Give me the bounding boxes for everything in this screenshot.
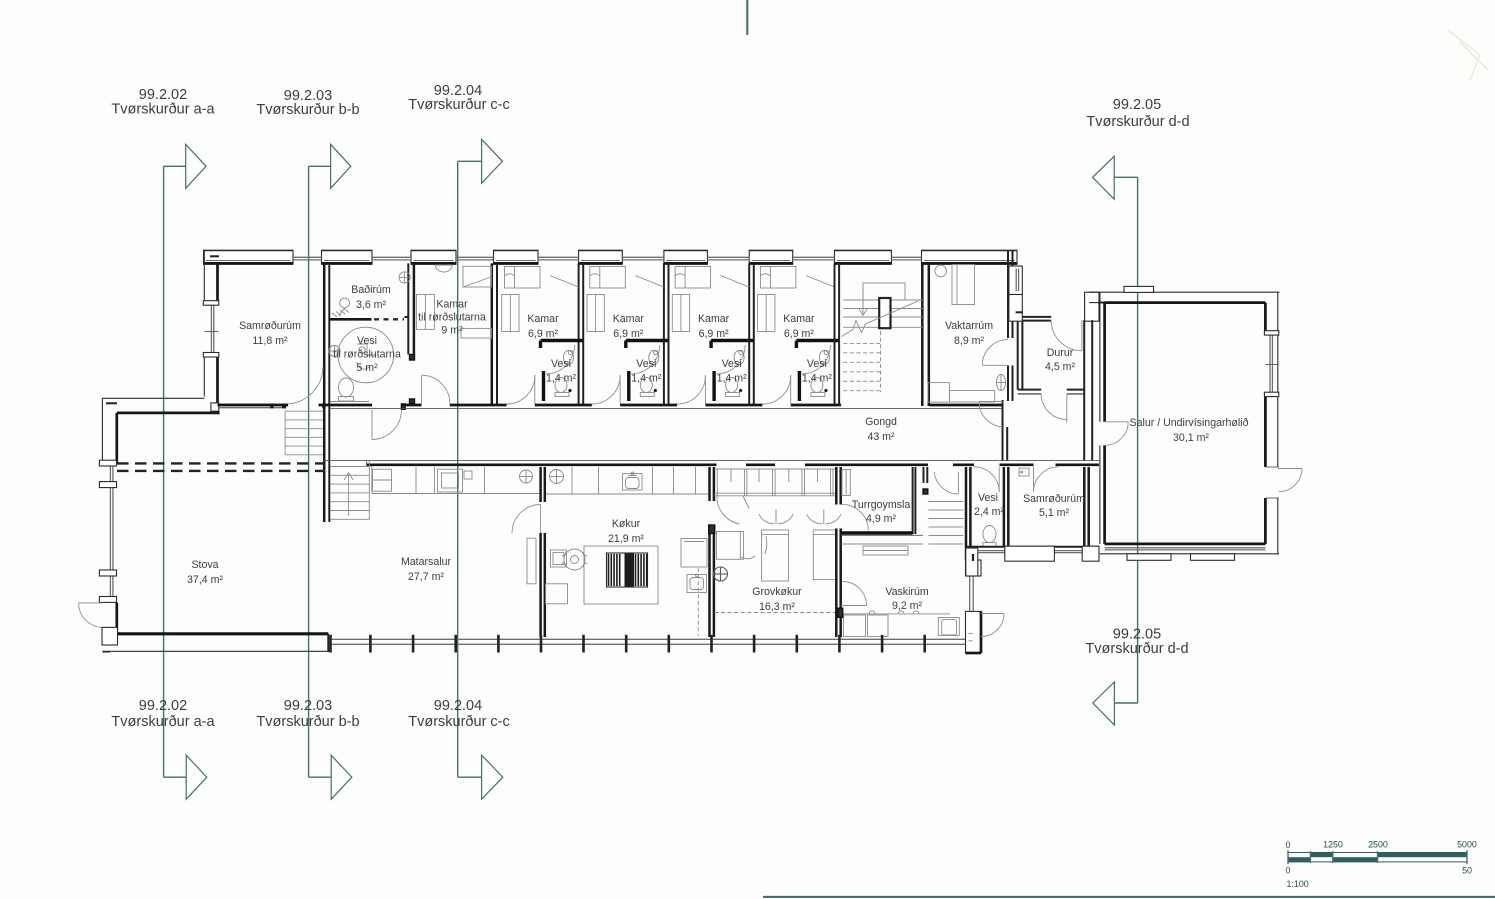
svg-text:til rørðslutarna: til rørðslutarna — [333, 349, 401, 361]
svg-text:Kamar: Kamar — [613, 313, 645, 325]
svg-text:Turrgoymsla: Turrgoymsla — [852, 499, 911, 511]
svg-text:Stova: Stova — [191, 559, 218, 571]
svg-text:5000: 5000 — [1457, 840, 1477, 850]
svg-text:0: 0 — [1286, 866, 1291, 876]
svg-text:4,9 m²: 4,9 m² — [866, 513, 896, 525]
svg-text:2,4 m²: 2,4 m² — [974, 506, 1004, 518]
svg-text:Tvørskurður d-d: Tvørskurður d-d — [1085, 641, 1188, 657]
svg-text:1,4 m²: 1,4 m² — [546, 373, 576, 385]
svg-text:1250: 1250 — [1323, 840, 1343, 850]
svg-text:9 m²: 9 m² — [441, 325, 463, 337]
svg-text:Vesi: Vesi — [722, 358, 742, 370]
svg-text:Tvørskurður b-b: Tvørskurður b-b — [256, 102, 359, 118]
svg-text:1,4 m²: 1,4 m² — [717, 373, 747, 385]
svg-text:6,9 m²: 6,9 m² — [784, 328, 814, 340]
svg-text:99.2.02: 99.2.02 — [139, 698, 187, 714]
svg-text:Vesi: Vesi — [636, 358, 656, 370]
svg-text:99.2.05: 99.2.05 — [1113, 97, 1161, 113]
svg-text:Tvørskurður d-d: Tvørskurður d-d — [1086, 114, 1189, 130]
svg-text:Kamar: Kamar — [436, 299, 468, 311]
svg-text:Matarsalur: Matarsalur — [401, 556, 452, 568]
svg-text:Vesi: Vesi — [551, 358, 571, 370]
svg-text:37,4 m²: 37,4 m² — [187, 574, 223, 586]
svg-text:Tvørskurður c-c: Tvørskurður c-c — [408, 97, 510, 113]
svg-text:Samrøðurúm: Samrøðurúm — [239, 320, 301, 332]
svg-text:6,9 m²: 6,9 m² — [528, 328, 558, 340]
svg-text:8,9 m²: 8,9 m² — [954, 335, 984, 347]
svg-text:Vaskirúm: Vaskirúm — [885, 586, 929, 598]
svg-text:Grovkøkur: Grovkøkur — [752, 586, 802, 598]
svg-text:Køkur: Køkur — [612, 518, 641, 530]
svg-text:4,5 m²: 4,5 m² — [1045, 361, 1075, 373]
svg-text:til rørðslutarna: til rørðslutarna — [418, 312, 486, 324]
svg-text:Vesi: Vesi — [357, 335, 377, 347]
svg-text:Kamar: Kamar — [698, 313, 730, 325]
svg-text:Tvørskurður b-b: Tvørskurður b-b — [256, 714, 359, 730]
svg-text:99.2.04: 99.2.04 — [434, 698, 482, 714]
svg-text:3,6 m²: 3,6 m² — [356, 299, 386, 311]
svg-text:Tvørskurður c-c: Tvørskurður c-c — [408, 714, 510, 730]
svg-text:0: 0 — [1286, 840, 1291, 850]
svg-text:Durur: Durur — [1047, 347, 1074, 359]
svg-text:Samrøðurúm: Samrøðurúm — [1023, 493, 1085, 505]
svg-text:Vaktarrúm: Vaktarrúm — [945, 320, 993, 332]
svg-text:99.2.03: 99.2.03 — [284, 698, 332, 714]
svg-text:21,9 m²: 21,9 m² — [608, 533, 644, 545]
svg-text:30,1 m²: 30,1 m² — [1173, 432, 1209, 444]
svg-text:1,4 m²: 1,4 m² — [631, 373, 661, 385]
svg-text:Kamar: Kamar — [527, 313, 559, 325]
svg-text:Vesi: Vesi — [807, 358, 827, 370]
svg-text:5 m²: 5 m² — [356, 362, 378, 374]
svg-text:6,9 m²: 6,9 m² — [613, 328, 643, 340]
svg-text:Kamar: Kamar — [783, 313, 815, 325]
svg-text:Vesi: Vesi — [978, 492, 998, 504]
svg-text:50: 50 — [1462, 866, 1472, 876]
svg-text:Gongd: Gongd — [865, 416, 897, 428]
svg-text:2500: 2500 — [1368, 840, 1388, 850]
svg-text:43 m²: 43 m² — [867, 431, 895, 443]
svg-text:5,1 m²: 5,1 m² — [1039, 507, 1069, 519]
svg-text:Salur / Undirvísingarhølið: Salur / Undirvísingarhølið — [1130, 417, 1249, 429]
svg-text:1:100: 1:100 — [1287, 879, 1309, 889]
svg-text:Tvørskurður a-a: Tvørskurður a-a — [111, 714, 215, 730]
svg-text:1,4 m²: 1,4 m² — [802, 373, 832, 385]
svg-text:6,9 m²: 6,9 m² — [699, 328, 729, 340]
svg-text:27,7 m²: 27,7 m² — [408, 571, 444, 583]
svg-text:Baðirúm: Baðirúm — [351, 284, 391, 296]
svg-text:Tvørskurður a-a: Tvørskurður a-a — [111, 102, 215, 118]
svg-text:16,3 m²: 16,3 m² — [759, 601, 795, 613]
svg-text:11,8 m²: 11,8 m² — [252, 335, 288, 347]
svg-text:9,2 m²: 9,2 m² — [892, 600, 922, 612]
